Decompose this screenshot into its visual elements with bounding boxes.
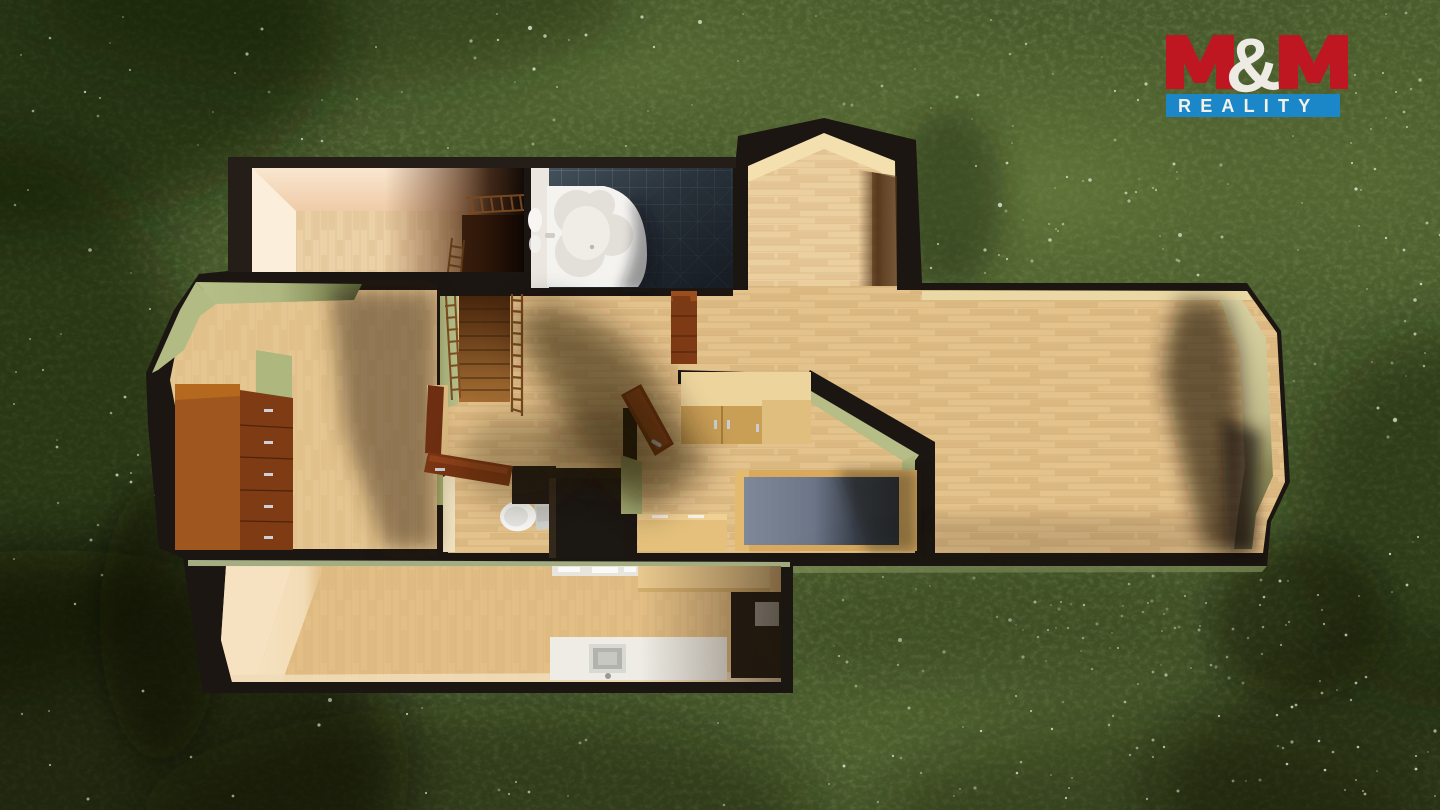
svg-text:REALITY: REALITY <box>1178 96 1319 116</box>
